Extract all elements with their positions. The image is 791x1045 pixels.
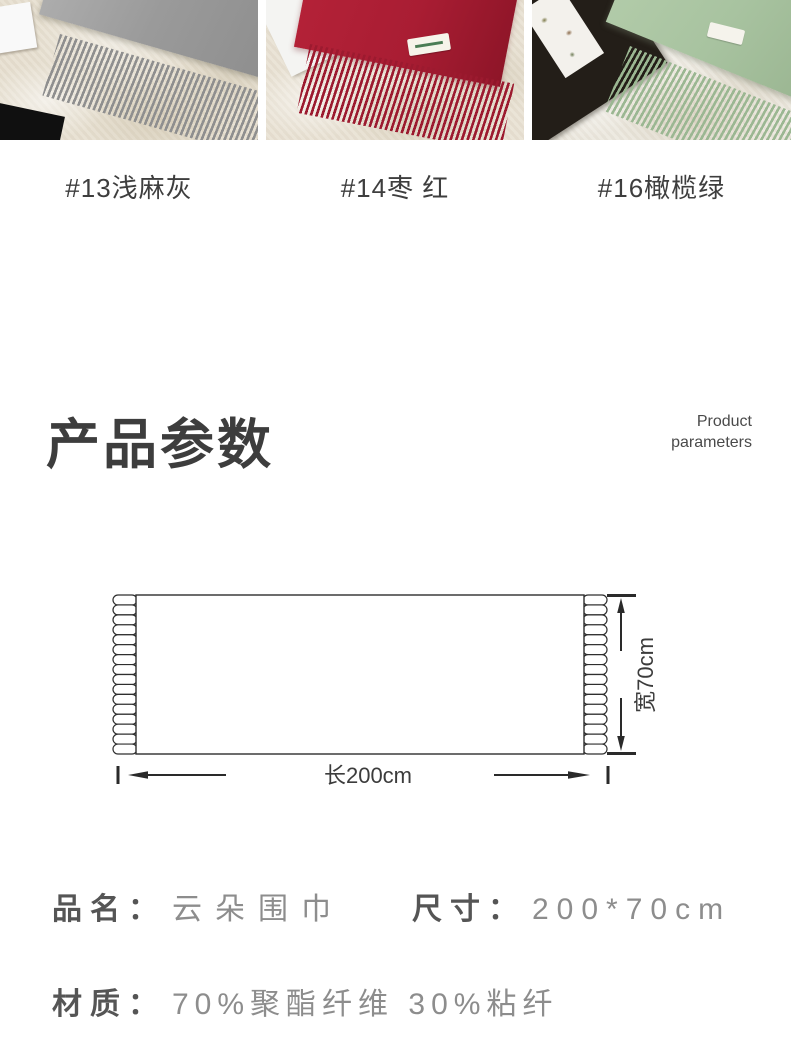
spec-name-value: 云朵围巾 — [172, 893, 344, 926]
product-photo-red — [266, 0, 524, 140]
size-diagram: 宽70cm 长200cm — [100, 585, 680, 800]
right-fringe — [583, 595, 607, 754]
product-photo-grey — [0, 0, 258, 140]
color-labels-row: #13浅麻灰 #14枣 红 #16橄榄绿 — [0, 168, 791, 205]
spec-material-label: 材质： — [52, 988, 166, 1021]
width-arrow-down-head — [617, 736, 625, 751]
length-arrow-left-head — [128, 771, 148, 779]
spec-row-material: 材质：70%聚酯纤维 30%粘纤 — [52, 979, 558, 1023]
spec-material-value: 70%聚酯纤维 30%粘纤 — [172, 988, 558, 1021]
size-diagram-svg: 宽70cm 长200cm — [100, 585, 680, 800]
product-photo-green — [532, 0, 791, 140]
spec-row-name-size: 品名：云朵围巾尺寸：200*70cm — [52, 884, 731, 928]
width-dimension-label: 宽70cm — [633, 637, 658, 713]
left-fringe — [113, 595, 137, 754]
length-dimension-label: 长200cm — [324, 763, 412, 788]
color-label-green: #16橄榄绿 — [532, 168, 791, 205]
section-title-cn: 产品参数 — [46, 400, 274, 479]
length-arrow-right-head — [568, 771, 590, 779]
color-label-grey: #13浅麻灰 — [0, 168, 258, 205]
scarf-outline-rect — [136, 595, 584, 754]
spec-name-label: 品名： — [52, 893, 166, 926]
section-title-en-line2: parameters — [671, 432, 752, 453]
product-detail-page: #13浅麻灰 #14枣 红 #16橄榄绿 产品参数 Product parame… — [0, 0, 791, 1045]
section-title-en-line1: Product — [671, 411, 752, 432]
color-label-red: #14枣 红 — [266, 168, 524, 205]
product-photos-row — [0, 0, 791, 140]
spec-size-value: 200*70cm — [532, 893, 731, 926]
spec-size-label: 尺寸： — [412, 893, 526, 926]
section-title-en: Product parameters — [671, 411, 752, 453]
width-arrow-up-head — [617, 598, 625, 613]
